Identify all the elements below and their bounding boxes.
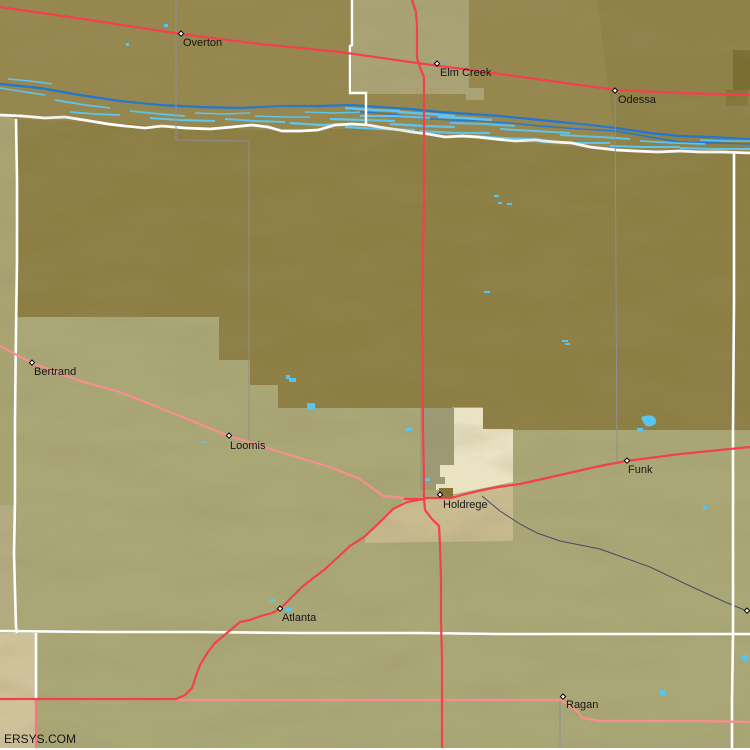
svg-text:Atlanta: Atlanta bbox=[282, 612, 317, 624]
svg-text:Loomis: Loomis bbox=[230, 440, 266, 452]
svg-text:Overton: Overton bbox=[183, 37, 222, 49]
svg-text:Bertrand: Bertrand bbox=[34, 366, 76, 378]
svg-text:Elm Creek: Elm Creek bbox=[440, 67, 492, 79]
svg-text:Holdrege: Holdrege bbox=[443, 499, 488, 511]
svg-text:Ragan: Ragan bbox=[566, 699, 598, 711]
svg-text:Odessa: Odessa bbox=[618, 94, 657, 106]
svg-text:Funk: Funk bbox=[628, 464, 653, 476]
svg-text:ERSYS.COM: ERSYS.COM bbox=[4, 732, 76, 746]
